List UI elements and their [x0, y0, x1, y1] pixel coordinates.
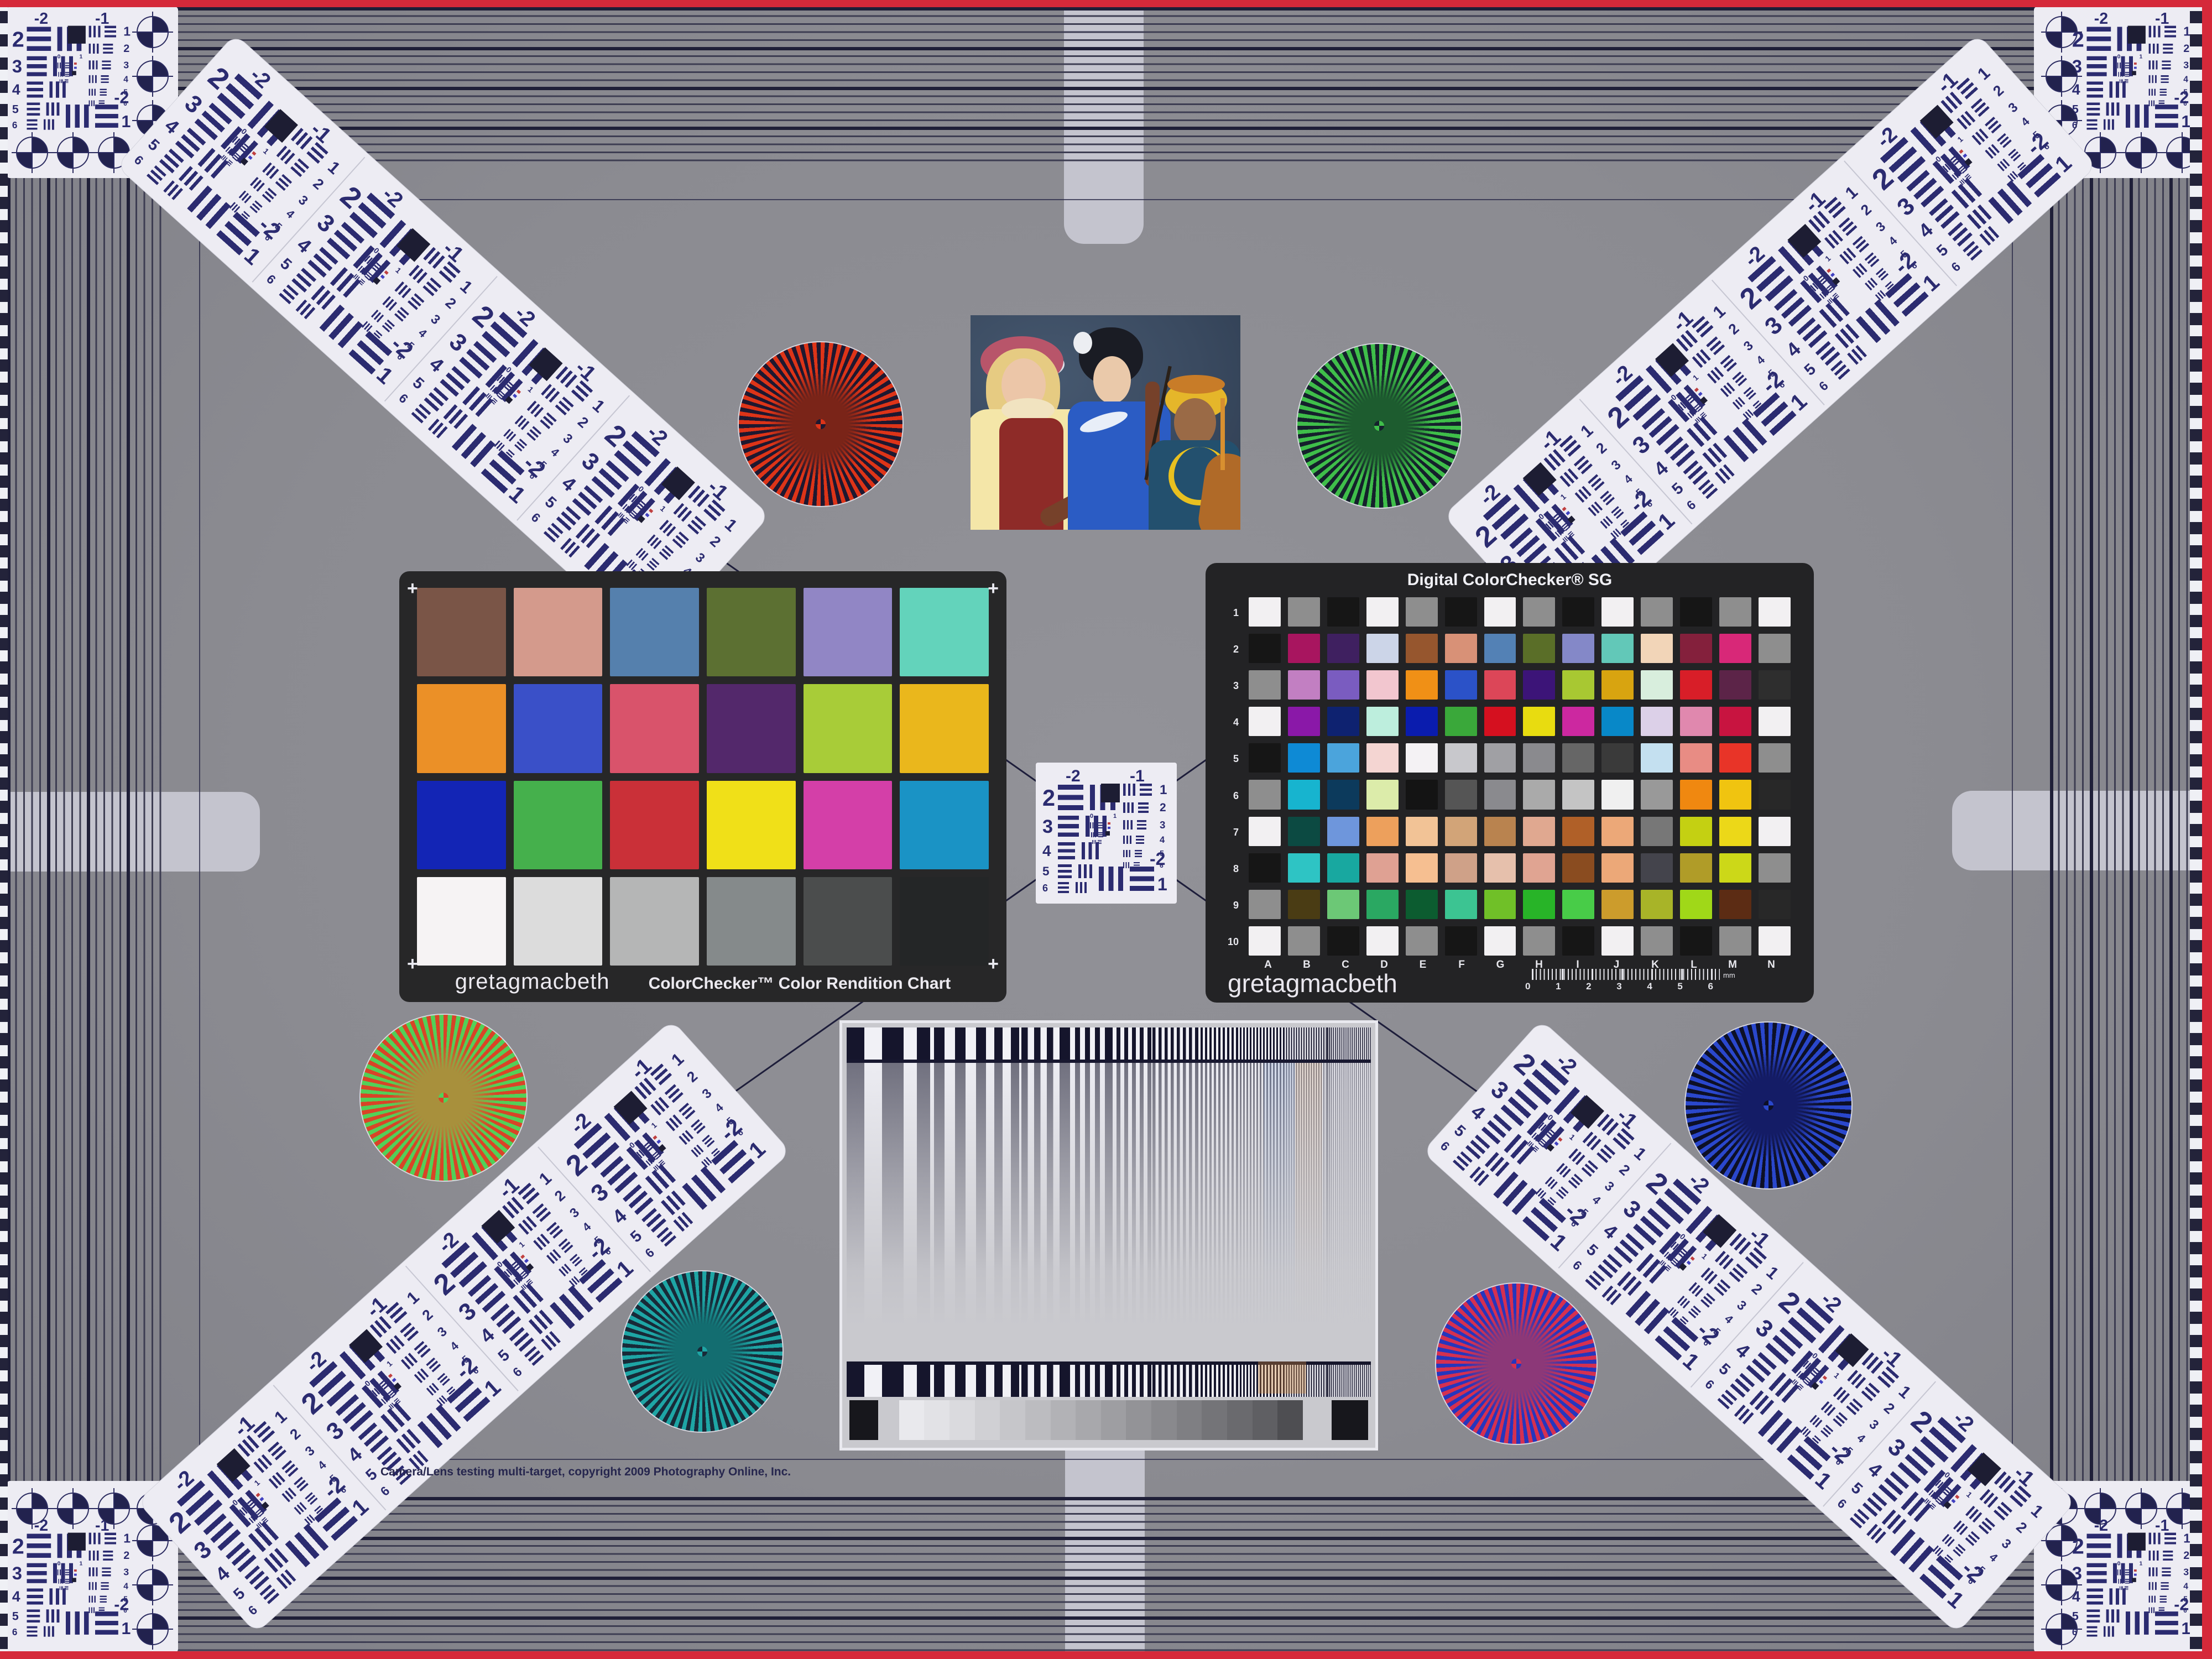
h-bars-icon — [1692, 316, 1713, 337]
white-flower — [1073, 332, 1092, 354]
v-bars-icon — [462, 386, 493, 417]
usaf-number: 3 — [2183, 1567, 2189, 1577]
v-bars-icon — [2149, 1567, 2158, 1576]
v-bars-icon — [239, 190, 252, 203]
v-bars-icon — [1971, 128, 1988, 145]
h-bars-icon — [524, 1346, 544, 1366]
h-bars-icon — [1774, 289, 1812, 327]
h-bars-icon — [571, 380, 593, 402]
color-patch — [417, 684, 506, 773]
h-bars-icon — [1137, 820, 1146, 830]
blue-speck — [1554, 1141, 1559, 1146]
usaf-number: 6 — [1571, 1258, 1584, 1272]
usaf-number: 4 — [448, 1340, 461, 1353]
h-bars-icon — [65, 62, 71, 68]
v-bars-icon — [1636, 1253, 1667, 1284]
quadrant-circle-icon — [16, 137, 48, 169]
h-bars-icon — [27, 1563, 47, 1583]
h-bars-icon — [2087, 1534, 2111, 1558]
h-bars-icon — [275, 174, 292, 191]
sg-color-patch — [1288, 707, 1320, 736]
sg-color-patch — [1562, 926, 1594, 956]
sg-color-patch — [1484, 817, 1516, 846]
usaf-number: 1 — [80, 1561, 83, 1567]
h-bars-icon — [1963, 241, 1983, 261]
h-bars-icon — [1745, 1247, 1767, 1269]
quadrant-circle-icon — [57, 137, 89, 169]
usaf-number: 5 — [1583, 1241, 1600, 1259]
gray-step — [1202, 1400, 1227, 1440]
h-bars-icon — [1929, 1503, 1936, 1510]
usaf-number: 4 — [581, 1221, 593, 1234]
sg-color-patch — [1445, 743, 1477, 773]
v-bars-icon — [229, 202, 241, 213]
sg-color-patch — [1327, 670, 1359, 700]
usaf-number: -2 — [2094, 11, 2108, 27]
h-bars-icon — [1744, 387, 1756, 400]
blue-speck — [259, 1497, 264, 1501]
sg-color-patch — [1327, 707, 1359, 736]
right-face — [1174, 398, 1216, 447]
h-bars-icon — [27, 1588, 43, 1604]
sg-color-patch — [1719, 780, 1751, 809]
usaf-number: -2 — [114, 89, 129, 106]
h-bars-icon — [305, 1492, 317, 1505]
blue-speck — [1108, 827, 1110, 829]
v-bars-icon — [262, 162, 279, 179]
magenta-blue-star — [1435, 1282, 1598, 1445]
sg-color-patch — [1249, 853, 1281, 883]
sg-color-patch — [1759, 817, 1791, 846]
sg-color-patch — [1641, 780, 1673, 809]
sg-color-patch — [1484, 853, 1516, 883]
h-bars-icon — [1906, 170, 1944, 207]
h-bars-icon — [2125, 1587, 2128, 1590]
red-speck — [1694, 388, 1699, 392]
h-bars-icon — [27, 27, 51, 51]
h-bars-icon — [411, 404, 431, 424]
color-patch — [610, 781, 699, 869]
sg-color-patch — [1641, 597, 1673, 627]
v-bars-icon — [1715, 464, 1735, 484]
v-bars-icon — [2149, 26, 2161, 38]
usaf-number: -2 — [1890, 248, 1919, 278]
h-bars-icon — [2087, 1609, 2100, 1623]
v-bars-icon — [330, 267, 361, 298]
h-bars-icon — [1853, 236, 1869, 252]
v-bars-icon — [673, 503, 692, 522]
v-bars-icon — [1677, 1296, 1690, 1308]
v-bars-icon — [46, 1609, 60, 1623]
sg-color-patch — [1759, 890, 1791, 919]
v-bars-icon — [2117, 62, 2123, 68]
usaf-number: 2 — [123, 44, 129, 55]
usaf-number: 5 — [628, 1228, 645, 1245]
h-bars-icon — [1997, 133, 2012, 148]
crosshair-v — [72, 132, 74, 173]
h-bars-icon — [400, 1322, 419, 1341]
v-bars-icon — [559, 1264, 571, 1276]
h-bars-icon — [623, 517, 630, 524]
h-bars-icon — [570, 1254, 582, 1266]
h-bars-icon — [101, 75, 108, 83]
v-bars-icon — [250, 177, 265, 192]
h-bars-icon — [646, 558, 659, 571]
sg-color-patch — [1406, 670, 1438, 700]
sg-color-patch — [1445, 597, 1477, 627]
usaf-number: 1 — [272, 1408, 290, 1427]
usaf-number: 1 — [1630, 1145, 1648, 1164]
portrait-test-image — [971, 315, 1240, 530]
gray-step — [1126, 1400, 1151, 1440]
sg-color-patch — [1366, 817, 1399, 846]
usaf-number: 3 — [1160, 820, 1165, 831]
v-bars-icon — [1942, 1534, 1954, 1547]
v-bars-icon — [1952, 178, 1983, 209]
usaf-resolution-module: -2-123456123456-2101 — [1041, 768, 1171, 898]
registration-plus-icon: + — [407, 579, 418, 598]
h-bars-icon — [2155, 1611, 2178, 1635]
gray-step — [924, 1400, 950, 1440]
h-bars-icon — [1953, 1544, 1965, 1557]
sg-col-label: E — [1404, 959, 1442, 971]
v-bars-icon — [89, 1533, 101, 1545]
usaf-number: 4 — [609, 1206, 630, 1228]
usaf-number: -1 — [1613, 1105, 1641, 1133]
usaf-number: -2 — [319, 1472, 349, 1502]
teal-star — [621, 1270, 784, 1433]
crosshair-v — [113, 1488, 114, 1529]
sg-color-patch — [1366, 926, 1399, 956]
gray-step — [1051, 1400, 1076, 1440]
v-bars-icon — [1559, 468, 1578, 487]
h-bars-icon — [514, 439, 527, 451]
usaf-number: 0 — [2117, 54, 2121, 60]
usaf-number: 1 — [123, 26, 131, 39]
sg-color-patch — [1288, 926, 1320, 956]
registration-plus-icon: + — [988, 579, 999, 598]
usaf-number: -2 — [2174, 89, 2189, 106]
sg-color-patch — [1523, 926, 1555, 956]
usaf-number: 1 — [123, 1533, 131, 1546]
usaf-number: 1 — [1964, 1491, 1973, 1500]
h-bars-icon — [1815, 341, 1840, 366]
sg-color-patch — [1406, 890, 1438, 919]
sg-color-patch — [1484, 707, 1516, 736]
sg-color-patch — [1484, 670, 1516, 700]
micro-square — [2132, 1578, 2136, 1582]
h-bars-icon — [253, 1421, 275, 1443]
usaf-number: 1 — [589, 397, 607, 416]
red-speck — [74, 1569, 77, 1572]
usaf-number: 1 — [1578, 422, 1597, 441]
v-bars-icon — [443, 404, 468, 429]
sg-color-patch — [1445, 707, 1477, 736]
h-bars-icon — [439, 261, 461, 283]
sg-color-patch — [1288, 597, 1320, 627]
color-patch — [707, 684, 796, 773]
color-patch — [804, 877, 893, 966]
sg-color-patch — [1719, 597, 1751, 627]
usaf-number: 0 — [2117, 1561, 2121, 1567]
v-bars-icon — [2106, 1609, 2120, 1623]
v-bars-icon — [576, 523, 601, 548]
v-bars-icon — [1824, 230, 1843, 249]
usaf-number: -2 — [1693, 1318, 1723, 1348]
usaf-number: 3 — [1042, 817, 1053, 836]
sg-color-patch — [1523, 743, 1555, 773]
h-bars-icon — [1058, 882, 1069, 893]
sg-color-patch — [1523, 890, 1555, 919]
h-bars-icon — [426, 1358, 441, 1373]
usaf-number: 1 — [80, 54, 83, 60]
v-bars-icon — [1123, 862, 1129, 868]
v-bars-icon — [89, 1582, 97, 1590]
usaf-number: 6 — [397, 392, 410, 405]
usaf-number: 3 — [700, 1087, 714, 1101]
v-bars-icon — [661, 1191, 686, 1215]
gray-step — [899, 1400, 925, 1440]
usaf-number: -2 — [1825, 1437, 1855, 1467]
red-speck — [1955, 1495, 1959, 1499]
sg-color-patch — [1249, 743, 1281, 773]
h-bars-icon — [307, 247, 338, 278]
usaf-number: 2 — [12, 1536, 24, 1557]
h-bars-icon — [336, 1394, 373, 1432]
v-bars-icon — [1875, 290, 1886, 301]
color-patch — [417, 877, 506, 966]
sg-color-patch — [1680, 743, 1712, 773]
h-bars-icon — [2125, 62, 2131, 68]
test-chart-scene: -2-123456123456-2101-2-123456123456-2101… — [0, 0, 2212, 1659]
usaf-number: -2 — [519, 451, 549, 481]
v-bars-icon — [89, 1567, 98, 1576]
crosshair-v — [152, 12, 153, 53]
crosshair-v — [2061, 1564, 2062, 1605]
sg-color-patch — [1641, 743, 1673, 773]
v-bars-icon — [1610, 528, 1621, 539]
sg-color-patch — [1406, 780, 1438, 809]
sg-color-patch — [1288, 890, 1320, 919]
h-bars-icon — [268, 1442, 286, 1460]
h-bars-icon — [1597, 1144, 1615, 1163]
crosshair-v — [2141, 132, 2142, 173]
v-bars-icon — [1856, 299, 1900, 343]
usaf-resolution-module: -2-123456123456-2101 — [2071, 1518, 2194, 1641]
usaf-number: 3 — [2183, 60, 2189, 70]
v-bars-icon — [2007, 171, 2018, 182]
color-patch — [610, 684, 699, 773]
v-bars-icon — [1800, 1426, 1811, 1437]
star-hub — [1374, 421, 1384, 431]
sg-color-patch — [1366, 634, 1399, 663]
h-bars-icon — [1729, 1264, 1747, 1282]
black-block-right — [1332, 1400, 1368, 1440]
v-bars-icon — [1768, 1372, 1799, 1403]
colorchecker-24-grid — [417, 588, 989, 966]
v-bars-icon — [1676, 330, 1698, 352]
sg-row-label: 4 — [1222, 717, 1239, 728]
v-bars-icon — [1702, 443, 1727, 468]
h-bars-icon — [1730, 1373, 1755, 1398]
usaf-number: 3 — [1741, 339, 1756, 353]
usaf-number: 4 — [1987, 1551, 2000, 1564]
sg-color-patch — [1759, 707, 1791, 736]
usaf-number: 1 — [1832, 1372, 1840, 1381]
red-speck — [1823, 1375, 1827, 1380]
h-bars-icon — [1718, 1390, 1738, 1410]
usaf-number: 5 — [12, 1610, 19, 1622]
usaf-number: 4 — [477, 1325, 498, 1347]
h-bars-icon — [559, 1238, 573, 1253]
h-bars-icon — [1965, 1531, 1980, 1546]
v-bars-icon — [89, 60, 98, 69]
usaf-number: 4 — [161, 116, 182, 138]
usaf-number: 6 — [1835, 1496, 1849, 1510]
usaf-number: 1 — [394, 267, 402, 275]
color-patch — [514, 877, 603, 966]
sg-row-label: 1 — [1222, 607, 1239, 619]
usaf-number: 4 — [316, 1459, 329, 1472]
usaf-number: 2 — [1991, 83, 2007, 100]
sg-color-patch — [1327, 780, 1359, 809]
h-bars-icon — [665, 1084, 684, 1103]
v-bars-icon — [1985, 144, 2000, 159]
h-bars-icon — [1830, 360, 1850, 380]
sweep-square-wave-top — [847, 1027, 1371, 1060]
red-speck — [520, 1254, 525, 1259]
usaf-number: 6 — [510, 1365, 524, 1379]
usaf-number: 1 — [658, 505, 666, 514]
v-bars-icon — [533, 1234, 550, 1250]
sg-color-patch — [1759, 743, 1791, 773]
color-patch — [900, 877, 989, 966]
gray-step — [1151, 1400, 1177, 1440]
sg-color-patch — [1601, 817, 1634, 846]
v-bars-icon — [59, 72, 64, 77]
sg-color-patch — [1327, 926, 1359, 956]
v-bars-icon — [409, 265, 427, 284]
sg-color-patch — [1759, 670, 1791, 700]
usaf-number: -2 — [1958, 1557, 1988, 1587]
usaf-number: 2 — [310, 176, 326, 193]
sg-color-patch — [1484, 634, 1516, 663]
h-bars-icon — [1706, 336, 1725, 355]
crosshair-v — [2141, 1488, 2142, 1529]
usaf-number: 1 — [536, 1170, 555, 1188]
h-bars-icon — [95, 1611, 118, 1635]
sg-color-patch — [1406, 597, 1438, 627]
sg-color-patch — [1601, 597, 1634, 627]
gray-step — [1025, 1400, 1051, 1440]
usaf-number: -2 — [716, 1115, 746, 1145]
usaf-number: 3 — [693, 551, 707, 565]
usaf-number: 3 — [123, 60, 129, 70]
red-speck — [388, 1374, 393, 1378]
v-bars-icon — [659, 520, 676, 536]
usaf-number: 4 — [416, 327, 429, 340]
h-bars-icon — [2155, 105, 2178, 128]
sg-color-patch — [1484, 926, 1516, 956]
v-bars-icon — [1839, 248, 1856, 264]
h-bars-icon — [440, 366, 471, 397]
color-patch — [900, 781, 989, 869]
usaf-resolution-module: -2-123456123456-2101 — [2071, 11, 2194, 134]
ruler-number: 5 — [1677, 981, 1682, 992]
v-bars-icon — [2109, 81, 2125, 97]
h-bars-icon — [249, 200, 262, 213]
v-bars-icon — [426, 1383, 439, 1395]
h-bars-icon — [1058, 816, 1079, 837]
h-bars-icon — [2163, 1551, 2173, 1561]
color-patch — [707, 877, 796, 966]
quadrant-circle-icon — [2046, 1613, 2078, 1645]
h-bars-icon — [2087, 119, 2098, 130]
sg-color-patch — [1366, 853, 1399, 883]
v-bars-icon — [46, 102, 60, 116]
h-bars-icon — [468, 1275, 505, 1313]
quadrant-circle-icon — [2046, 16, 2078, 48]
v-bars-icon — [1588, 502, 1603, 517]
sweep-contrast-fade — [847, 1063, 1371, 1361]
h-bars-icon — [105, 26, 116, 38]
sg-color-patch — [1366, 707, 1399, 736]
h-bars-icon — [175, 128, 206, 159]
h-bars-icon — [1957, 77, 1978, 99]
usaf-number: 1 — [2182, 113, 2191, 129]
v-bars-icon — [58, 62, 63, 68]
h-bars-icon — [1130, 867, 1154, 891]
v-bars-icon — [2119, 1587, 2123, 1590]
h-bars-icon — [65, 72, 70, 77]
sg-color-patch — [1327, 890, 1359, 919]
sg-color-patch — [1641, 707, 1673, 736]
usaf-number: 3 — [435, 1325, 450, 1339]
h-bars-icon — [491, 1303, 521, 1334]
h-bars-icon — [95, 105, 118, 128]
usaf-number: 3 — [303, 1444, 317, 1458]
color-patch — [707, 781, 796, 869]
v-bars-icon — [2104, 119, 2114, 130]
h-bars-icon — [1058, 864, 1072, 878]
h-bars-icon — [540, 413, 556, 429]
black-square — [68, 1533, 86, 1551]
red-speck — [1959, 149, 1963, 154]
red-speck — [1691, 1256, 1695, 1261]
sg-color-patch — [1601, 743, 1634, 773]
usaf-number: 1 — [386, 1360, 394, 1369]
sg-color-patch — [1249, 817, 1281, 846]
usaf-number: -1 — [1669, 307, 1697, 336]
v-bars-icon — [1099, 867, 1123, 891]
h-bars-icon — [1865, 252, 1880, 267]
usaf-number: 1 — [1975, 65, 1994, 84]
star-hub — [439, 1093, 448, 1103]
v-bars-icon — [276, 145, 295, 164]
v-bars-icon — [2126, 105, 2149, 128]
sg-color-patch — [1719, 853, 1751, 883]
sg-col-label: N — [1752, 959, 1791, 971]
usaf-number: 3 — [1999, 1537, 2013, 1551]
v-bars-icon — [626, 560, 637, 571]
usaf-number: 2 — [288, 1427, 304, 1443]
v-bars-icon — [394, 281, 411, 298]
gray-step — [1253, 1400, 1278, 1440]
usaf-number: 2 — [1881, 1401, 1897, 1417]
v-bars-icon — [541, 1331, 561, 1351]
v-bars-icon — [2149, 1551, 2159, 1561]
v-bars-icon — [529, 1310, 554, 1334]
